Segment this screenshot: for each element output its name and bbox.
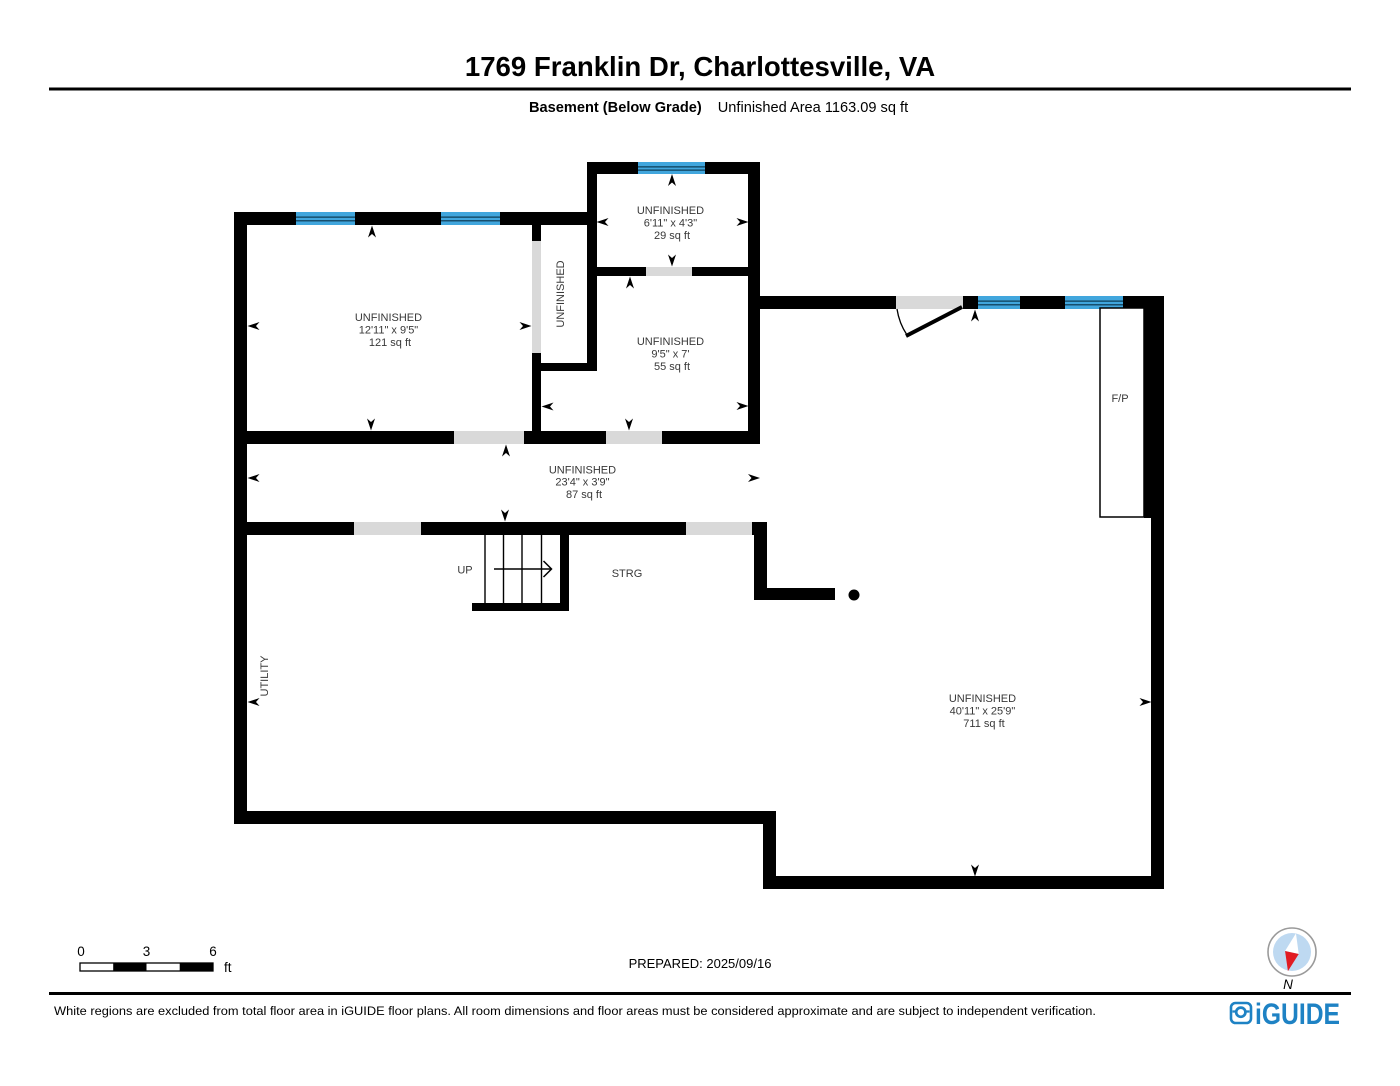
- svg-text:White regions are excluded fro: White regions are excluded from total fl…: [54, 1004, 1096, 1018]
- svg-text:ft: ft: [224, 960, 232, 975]
- svg-text:UP: UP: [457, 565, 472, 577]
- svg-text:iGUIDE: iGUIDE: [1255, 998, 1340, 1031]
- svg-text:PREPARED: 2025/09/16: PREPARED: 2025/09/16: [629, 956, 772, 971]
- svg-text:STRG: STRG: [612, 568, 643, 580]
- svg-text:1769 Franklin Dr, Charlottesvi: 1769 Franklin Dr, Charlottesville, VA: [465, 51, 935, 82]
- svg-text:N: N: [1283, 977, 1293, 992]
- svg-text:UNFINISHED: UNFINISHED: [555, 260, 567, 327]
- svg-text:Basement (Below Grade)Unfinish: Basement (Below Grade)Unfinished Area 11…: [529, 100, 908, 116]
- svg-text:UTILITY: UTILITY: [259, 655, 271, 697]
- svg-text:F/P: F/P: [1111, 393, 1128, 405]
- svg-text:6: 6: [209, 944, 217, 959]
- svg-text:0: 0: [77, 944, 85, 959]
- svg-text:3: 3: [143, 944, 151, 959]
